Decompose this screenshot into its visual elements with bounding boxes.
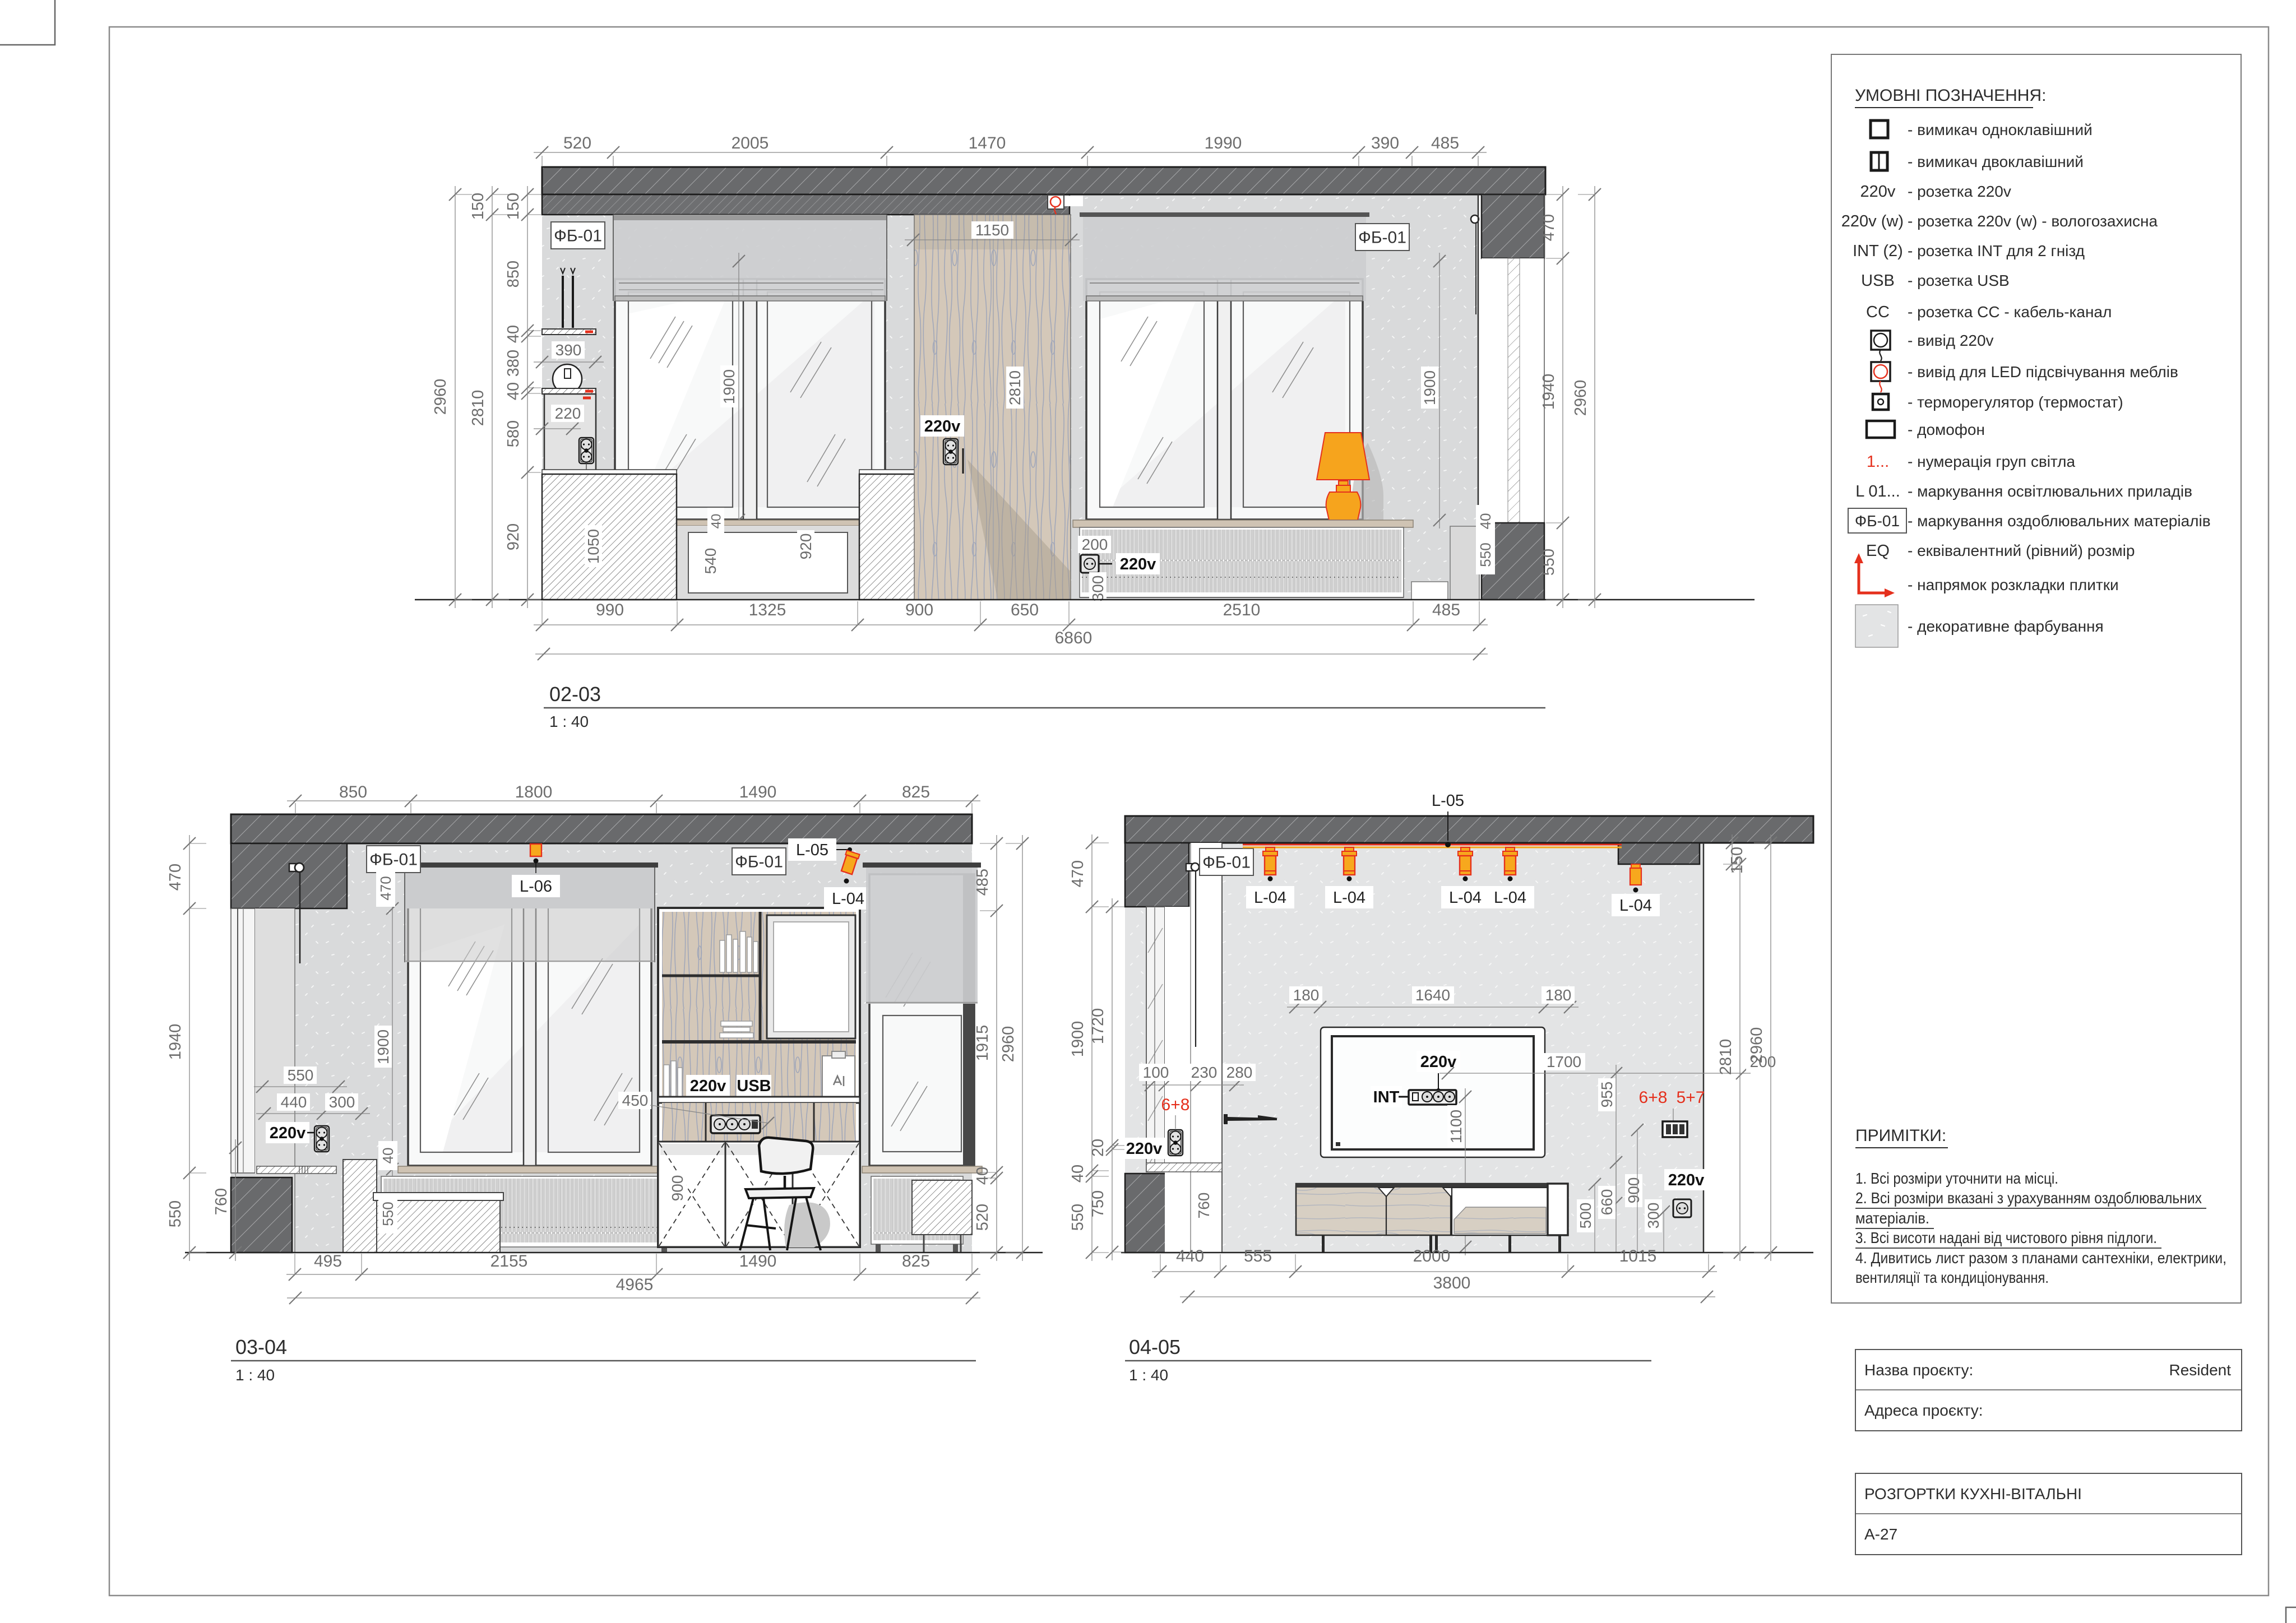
svg-text:L-04: L-04 — [1333, 889, 1365, 907]
svg-text:650: 650 — [1011, 601, 1039, 619]
svg-text:5+7: 5+7 — [1677, 1088, 1705, 1107]
svg-text:2810: 2810 — [1006, 370, 1024, 405]
svg-text:2810: 2810 — [469, 390, 487, 426]
svg-text:- маркування освітлювальних пр: - маркування освітлювальних приладів — [1908, 483, 2192, 500]
svg-text:760: 760 — [1195, 1193, 1212, 1219]
svg-text:220v: 220v — [1860, 183, 1896, 201]
svg-text:- вивід для LED підсвічування: - вивід для LED підсвічування меблів — [1908, 363, 2178, 381]
svg-text:1990: 1990 — [1205, 134, 1242, 152]
svg-text:180: 180 — [1293, 986, 1320, 1004]
svg-text:220: 220 — [555, 405, 581, 422]
svg-text:1900: 1900 — [1421, 370, 1438, 405]
svg-text:440: 440 — [281, 1093, 307, 1111]
svg-text:1940: 1940 — [1540, 374, 1558, 410]
svg-text:2155: 2155 — [490, 1252, 528, 1270]
svg-text:- домофон: - домофон — [1908, 421, 1985, 438]
svg-text:1800: 1800 — [515, 783, 553, 801]
svg-text:220v: 220v — [1120, 555, 1156, 573]
svg-text:L-05: L-05 — [796, 841, 828, 859]
svg-text:2960: 2960 — [1748, 1027, 1766, 1064]
svg-text:220v (w): 220v (w) — [1841, 212, 1904, 230]
svg-text:- розетка 220v (w) - вологозах: - розетка 220v (w) - вологозахисна — [1908, 212, 2158, 230]
svg-text:900: 900 — [905, 601, 933, 619]
svg-text:вентиляції та кондиціонування.: вентиляції та кондиціонування. — [1855, 1269, 2049, 1286]
svg-text:2. Всі розміри вказані з ураху: 2. Всі розміри вказані з урахуванням озд… — [1855, 1189, 2202, 1207]
svg-text:920: 920 — [504, 523, 522, 550]
svg-text:1...: 1... — [1867, 453, 1889, 471]
svg-text:495: 495 — [314, 1252, 342, 1270]
svg-text:440: 440 — [1176, 1247, 1204, 1265]
svg-text:300: 300 — [1089, 576, 1107, 602]
svg-text:L-05: L-05 — [1432, 792, 1464, 810]
svg-text:900: 900 — [1625, 1177, 1642, 1204]
svg-text:1. Всі розміри уточнити на міс: 1. Всі розміри уточнити на місці. — [1855, 1170, 2058, 1187]
svg-text:20: 20 — [1089, 1139, 1107, 1157]
svg-text:1700: 1700 — [1547, 1053, 1581, 1070]
svg-text:- еквівалентний (рівний) розмі: - еквівалентний (рівний) розмір — [1908, 542, 2135, 559]
svg-text:L-04: L-04 — [832, 890, 864, 908]
svg-text:900: 900 — [669, 1175, 686, 1202]
svg-text:4965: 4965 — [616, 1276, 654, 1294]
svg-text:500: 500 — [1577, 1203, 1594, 1229]
svg-text:485: 485 — [1431, 134, 1459, 152]
svg-text:825: 825 — [902, 1252, 930, 1270]
svg-text:- розетка INT для 2 гнізд: - розетка INT для 2 гнізд — [1908, 242, 2085, 259]
svg-text:450: 450 — [622, 1092, 649, 1109]
svg-text:1490: 1490 — [739, 783, 777, 801]
svg-text:- вимикач одноклавішний: - вимикач одноклавішний — [1908, 121, 2093, 138]
svg-text:230: 230 — [1191, 1064, 1218, 1081]
svg-text:- декоративне фарбування: - декоративне фарбування — [1908, 618, 2104, 635]
svg-text:- розетка СС - кабель-канал: - розетка СС - кабель-канал — [1908, 303, 2112, 321]
svg-text:485: 485 — [974, 869, 992, 896]
svg-text:550: 550 — [379, 1202, 396, 1226]
svg-text:03-04: 03-04 — [235, 1336, 287, 1358]
svg-text:2810: 2810 — [1717, 1039, 1735, 1075]
svg-text:760: 760 — [212, 1188, 230, 1215]
svg-text:550: 550 — [288, 1066, 314, 1084]
svg-text:470: 470 — [166, 864, 184, 891]
svg-text:- розетка USB: - розетка USB — [1908, 272, 2010, 289]
svg-text:1015: 1015 — [1619, 1247, 1657, 1265]
svg-text:850: 850 — [504, 261, 522, 287]
svg-text:580: 580 — [504, 420, 522, 447]
svg-text:520: 520 — [563, 134, 591, 152]
svg-text:825: 825 — [902, 783, 930, 801]
svg-text:6+8: 6+8 — [1639, 1088, 1668, 1107]
svg-text:520: 520 — [974, 1204, 992, 1231]
svg-text:555: 555 — [1244, 1247, 1272, 1265]
svg-text:Назва проєкту:: Назва проєкту: — [1864, 1361, 1973, 1379]
svg-text:ПРИМІТКИ:: ПРИМІТКИ: — [1855, 1126, 1946, 1145]
svg-text:1050: 1050 — [585, 529, 602, 564]
svg-text:INT (2): INT (2) — [1853, 242, 1903, 260]
svg-text:955: 955 — [1598, 1082, 1615, 1108]
svg-text:540: 540 — [702, 548, 719, 574]
svg-text:CC: CC — [1866, 303, 1890, 321]
svg-text:1 : 40: 1 : 40 — [235, 1366, 275, 1384]
svg-text:550: 550 — [1477, 542, 1494, 567]
svg-text:А-27: А-27 — [1864, 1525, 1897, 1543]
svg-text:40: 40 — [974, 1167, 992, 1185]
svg-text:2960: 2960 — [1572, 380, 1590, 416]
svg-text:220v: 220v — [270, 1124, 306, 1142]
svg-text:Адреса проєкту:: Адреса проєкту: — [1864, 1402, 1983, 1419]
svg-text:L-04: L-04 — [1254, 889, 1286, 907]
svg-text:INT: INT — [1373, 1088, 1400, 1106]
svg-text:220v: 220v — [1668, 1171, 1705, 1189]
svg-text:L 01...: L 01... — [1855, 483, 1900, 500]
svg-text:220v: 220v — [1126, 1140, 1163, 1158]
svg-text:180: 180 — [1545, 986, 1572, 1004]
svg-text:- вимикач двоклавішний: - вимикач двоклавішний — [1908, 153, 2084, 170]
svg-text:Resident: Resident — [2169, 1361, 2231, 1379]
svg-text:1100: 1100 — [1447, 1110, 1465, 1143]
svg-text:750: 750 — [1089, 1190, 1107, 1217]
svg-text:L-04: L-04 — [1619, 897, 1652, 915]
svg-text:- напрямок розкладки плитки: - напрямок розкладки плитки — [1908, 576, 2119, 593]
svg-text:300: 300 — [329, 1093, 355, 1111]
svg-text:- нумерація груп світла: - нумерація груп світла — [1908, 453, 2075, 470]
svg-text:220v: 220v — [1420, 1053, 1457, 1071]
svg-text:470: 470 — [377, 876, 394, 900]
svg-text:990: 990 — [596, 601, 624, 619]
svg-text:3. Всі висоти надані від чисто: 3. Всі висоти надані від чистового рівня… — [1855, 1229, 2157, 1246]
svg-text:40: 40 — [504, 325, 522, 343]
svg-text:1940: 1940 — [166, 1024, 184, 1060]
svg-text:1720: 1720 — [1089, 1008, 1107, 1045]
svg-text:РОЗГОРТКИ КУХНІ-ВІТАЛЬНІ: РОЗГОРТКИ КУХНІ-ВІТАЛЬНІ — [1864, 1485, 2082, 1503]
svg-text:850: 850 — [339, 783, 367, 801]
svg-text:матеріалів.: матеріалів. — [1855, 1209, 1929, 1227]
svg-text:6860: 6860 — [1055, 629, 1093, 647]
svg-text:2000: 2000 — [1413, 1247, 1451, 1265]
svg-text:200: 200 — [1082, 536, 1108, 553]
svg-text:4. Дивитись лист разом з плана: 4. Дивитись лист разом з планами сантехн… — [1855, 1249, 2226, 1267]
svg-text:40: 40 — [1477, 513, 1494, 530]
svg-text:40: 40 — [504, 382, 522, 400]
svg-text:280: 280 — [1226, 1064, 1253, 1081]
svg-text:1900: 1900 — [720, 369, 738, 404]
svg-text:2960: 2960 — [999, 1026, 1017, 1063]
svg-text:220v: 220v — [924, 418, 961, 435]
svg-text:2005: 2005 — [732, 134, 769, 152]
svg-text:1900: 1900 — [1069, 1021, 1087, 1058]
svg-text:485: 485 — [1432, 601, 1460, 619]
svg-text:660: 660 — [1598, 1189, 1615, 1216]
svg-text:L-04: L-04 — [1494, 889, 1526, 907]
svg-text:ФБ-01: ФБ-01 — [1855, 512, 1900, 530]
svg-text:04-05: 04-05 — [1129, 1336, 1181, 1358]
svg-text:L-04: L-04 — [1449, 889, 1482, 907]
svg-text:1325: 1325 — [749, 601, 786, 619]
svg-text:150: 150 — [504, 193, 522, 220]
svg-text:1900: 1900 — [374, 1030, 392, 1064]
svg-text:USB: USB — [737, 1077, 771, 1095]
svg-text:470: 470 — [1540, 214, 1558, 241]
svg-text:УМОВНІ ПОЗНАЧЕННЯ:: УМОВНІ ПОЗНАЧЕННЯ: — [1855, 86, 2046, 105]
svg-text:40: 40 — [1069, 1165, 1087, 1183]
svg-text:1150: 1150 — [975, 221, 1009, 239]
svg-text:550: 550 — [1540, 549, 1558, 576]
svg-text:150: 150 — [469, 193, 487, 220]
svg-text:40: 40 — [709, 514, 724, 529]
svg-text:- вивід 220v: - вивід 220v — [1908, 332, 1994, 349]
svg-text:02-03: 02-03 — [549, 683, 601, 706]
svg-text:USB: USB — [1861, 272, 1895, 290]
svg-text:40: 40 — [379, 1148, 396, 1164]
svg-text:ФБ-01: ФБ-01 — [1358, 229, 1406, 247]
svg-text:L-06: L-06 — [520, 878, 552, 896]
svg-text:ФБ-01: ФБ-01 — [1202, 854, 1251, 872]
svg-text:2510: 2510 — [1223, 601, 1261, 619]
svg-text:1490: 1490 — [739, 1252, 777, 1270]
svg-text:390: 390 — [1371, 134, 1399, 152]
svg-text:3800: 3800 — [1433, 1274, 1471, 1292]
svg-text:1470: 1470 — [969, 134, 1006, 152]
svg-text:550: 550 — [166, 1200, 184, 1227]
svg-text:ФБ-01: ФБ-01 — [554, 227, 602, 245]
svg-text:470: 470 — [1069, 860, 1087, 887]
svg-text:EQ: EQ — [1866, 542, 1890, 560]
svg-text:- розетка 220v: - розетка 220v — [1908, 183, 2011, 200]
svg-text:380: 380 — [504, 350, 522, 377]
svg-text:220v: 220v — [690, 1077, 726, 1095]
svg-text:1640: 1640 — [1415, 986, 1450, 1004]
svg-text:100: 100 — [1143, 1064, 1169, 1081]
svg-text:1 : 40: 1 : 40 — [549, 713, 589, 730]
svg-text:ФБ-01: ФБ-01 — [735, 853, 783, 871]
svg-text:1 : 40: 1 : 40 — [1129, 1366, 1168, 1384]
svg-text:1915: 1915 — [974, 1025, 992, 1061]
svg-text:2960: 2960 — [432, 379, 450, 415]
svg-text:- маркування оздоблювальних ма: - маркування оздоблювальних матеріалів — [1908, 512, 2211, 530]
svg-text:6+8: 6+8 — [1161, 1096, 1190, 1114]
svg-text:- терморегулятор (термостат): - терморегулятор (термостат) — [1908, 393, 2123, 411]
svg-text:390: 390 — [556, 341, 582, 359]
svg-text:920: 920 — [797, 534, 814, 560]
svg-text:ФБ-01: ФБ-01 — [369, 851, 418, 869]
svg-text:550: 550 — [1069, 1204, 1087, 1231]
